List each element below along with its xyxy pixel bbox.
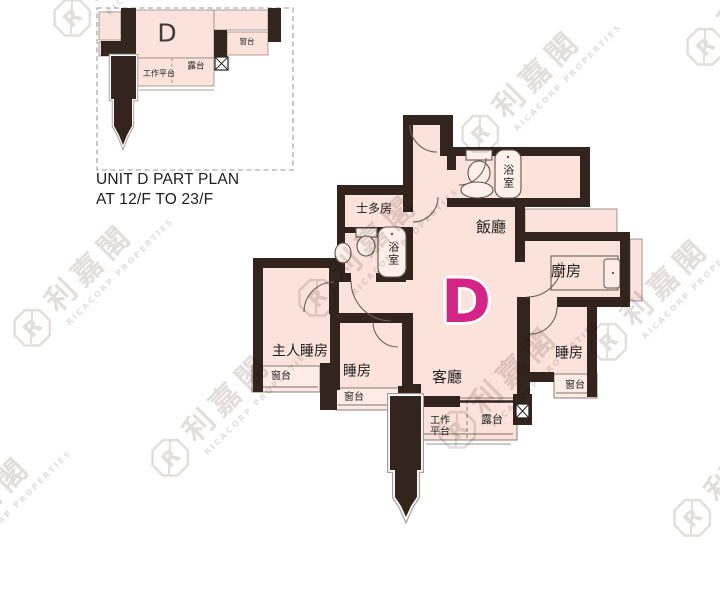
room-label-bedroom-middle: 睡房 — [343, 365, 371, 380]
ac-platform-strip — [525, 209, 617, 233]
structural-fin — [390, 396, 421, 517]
label-bay-window-master: 窗台 — [271, 372, 291, 383]
label-bay-window-right: 窗台 — [565, 381, 585, 392]
floor-plan-page: 飯廳 廚房 士多房 浴室 浴室 主人睡房 客廳 睡房 睡房 窗台 窗台 窗台 露… — [0, 0, 720, 540]
inset-label-bay-window: 窗台 — [240, 38, 255, 46]
label-balcony: 露台 — [481, 414, 503, 426]
room-label-living: 客廳 — [432, 370, 462, 386]
room-label-master-bedroom: 主人睡房 — [272, 345, 328, 360]
unit-letter-main: D — [441, 267, 491, 337]
label-bay-window-middle: 窗台 — [344, 393, 364, 404]
inset-caption-line2: AT 12/F TO 23/F — [96, 190, 239, 210]
inset-caption: UNIT D PART PLAN AT 12/F TO 23/F — [96, 170, 239, 210]
room-label-store: 士多房 — [356, 203, 392, 216]
sink-inner — [335, 243, 351, 263]
room-label-bath-top: 浴室 — [502, 164, 514, 190]
toilet-bowl-inner — [357, 236, 375, 256]
unit-letter-inset: D — [157, 19, 176, 48]
duct-box-inset — [215, 57, 228, 70]
room-label-dining: 飯廳 — [476, 220, 506, 236]
room-label-bedroom-right: 睡房 — [555, 347, 583, 362]
inset-label-balcony: 露台 — [187, 63, 204, 72]
inset-part-plan — [97, 8, 293, 170]
kitchen-side-strip — [630, 239, 642, 301]
room-label-bath-inner: 浴室 — [387, 241, 399, 267]
inset-caption-line1: UNIT D PART PLAN — [96, 170, 239, 190]
label-utility-platform: 工作平台 — [427, 417, 453, 438]
duct-box-main — [516, 404, 529, 418]
toilet-tank-top — [466, 150, 492, 160]
room-label-kitchen: 廚房 — [551, 264, 581, 280]
kitchen-appliance — [604, 259, 620, 288]
floor-plan-drawing — [0, 0, 720, 540]
toilet-bowl-top — [468, 161, 490, 185]
inset-structural-fin — [111, 56, 136, 145]
inset-label-utility-platform: 工作平台 — [143, 70, 175, 78]
